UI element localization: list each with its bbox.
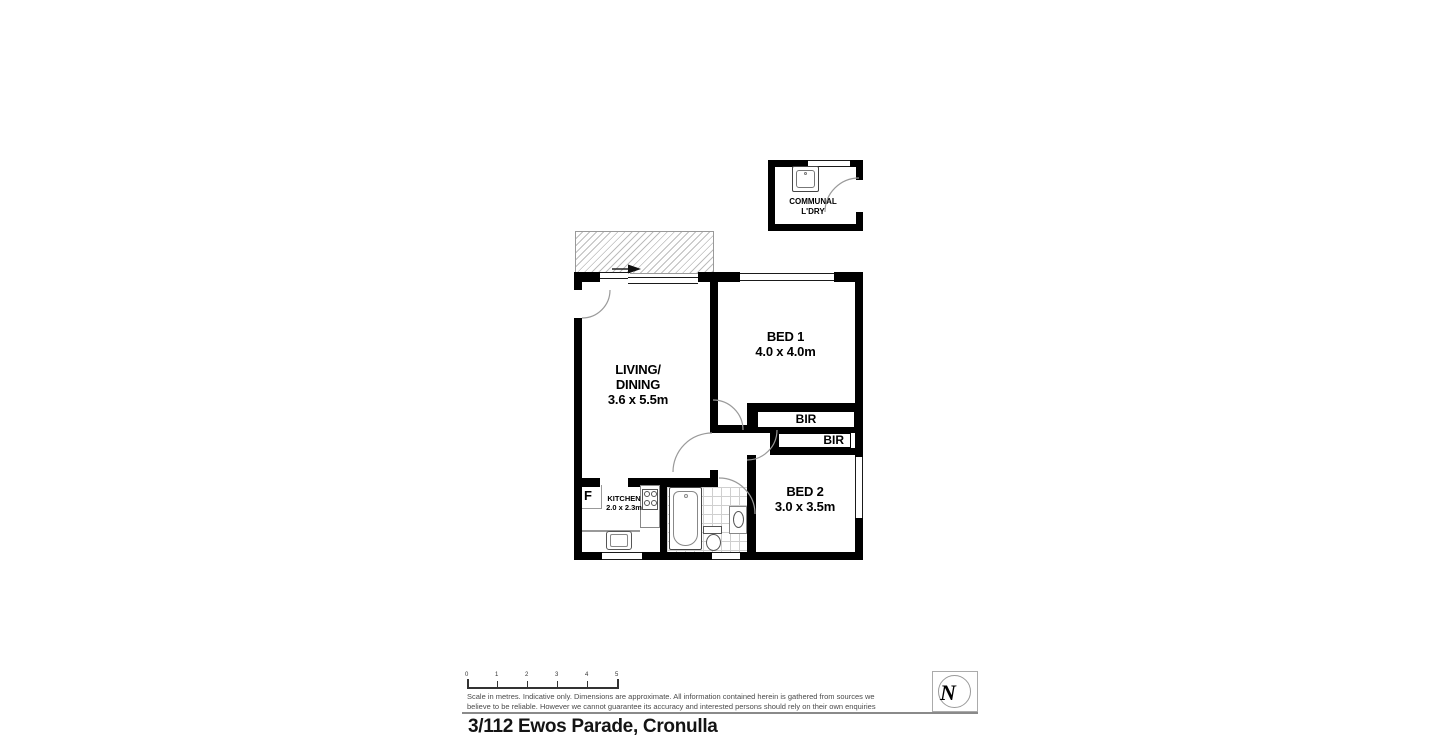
scale-tick [557,681,558,689]
scale-tick-label: 0 [465,672,468,678]
north-label: N [940,680,956,706]
tap-icon [804,172,807,175]
scale-bar-line [467,687,618,689]
wall [770,448,863,455]
room-label-bed1: BED 1 4.0 x 4.0m [716,329,855,359]
fridge-label: F [584,488,592,503]
burner-icon [651,491,657,497]
wall [574,272,600,282]
wall [574,318,582,560]
window-bed1 [740,273,834,281]
hall-door-arc [673,433,712,472]
wall [770,433,778,448]
room-label-living: LIVING/ DINING 3.6 x 5.5m [574,362,702,407]
drain-icon [684,494,688,498]
living-dims: 3.6 x 5.5m [608,392,668,407]
bed1-name: BED 1 [767,329,804,344]
kitchen-dims: 2.0 x 2.3m [606,503,642,512]
bed2-dims: 3.0 x 3.5m [775,499,835,514]
scale-tick [467,679,469,689]
bed2-name: BED 2 [786,484,823,499]
scale-tick [587,681,588,689]
bir2-box: BIR [778,433,851,448]
bathtub-inner [673,491,698,546]
door-arcs-overlay [0,0,1440,755]
living-line2: DINING [616,377,660,392]
room-label-bed2: BED 2 3.0 x 3.5m [755,484,855,514]
wall [856,160,863,180]
window-kitchen [602,552,642,560]
basin-icon [733,511,744,528]
window-bed2 [855,457,863,518]
room-label-laundry: COMMUNAL L'DRY [777,197,849,217]
wall [856,212,863,231]
scale-tick [497,681,498,689]
wall [698,272,740,282]
scale-tick-label: 4 [585,672,588,678]
laundry-line2: L'DRY [801,207,824,216]
bir1-box: BIR [757,411,855,428]
scale-tick-label: 5 [615,672,618,678]
window-bathroom [712,552,740,560]
footer-divider [462,712,978,714]
wall [574,552,602,560]
scale-tick-label: 1 [495,672,498,678]
burner-icon [651,500,657,506]
walkway-hatch [575,231,714,274]
toilet-tank [703,526,722,534]
bir2-label: BIR [823,433,844,447]
scale-tick [527,681,528,689]
living-line1: LIVING/ [615,362,661,377]
wall [642,552,712,560]
wall [710,425,747,433]
floorplan-page: COMMUNAL L'DRY BIR BIR [0,0,1440,755]
fridge-letter: F [584,488,592,503]
scale-tick-label: 3 [555,672,558,678]
toilet-icon [706,534,721,551]
window [628,277,698,284]
wall [747,403,863,411]
wall-kitchen-bath [660,485,667,552]
scale-tick [617,679,619,689]
wall [768,160,775,231]
wall [667,478,718,487]
entry-door-arc [582,290,610,318]
address-title: 3/112 Ewos Parade, Cronulla [468,716,718,738]
disclaimer-line1: Scale in metres. Indicative only. Dimens… [467,692,875,702]
wall [768,224,863,231]
laundry-line1: COMMUNAL [789,197,837,206]
wall [740,552,863,560]
bed1-dims: 4.0 x 4.0m [755,344,815,359]
window [600,272,630,279]
kitchen-sink-inner [610,534,628,547]
bir1-label: BIR [796,412,817,426]
scale-tick-label: 2 [525,672,528,678]
disclaimer-line2: believe to be reliable. However we canno… [467,702,876,712]
room-label-kitchen: KITCHEN 2.0 x 2.3m [597,495,651,512]
